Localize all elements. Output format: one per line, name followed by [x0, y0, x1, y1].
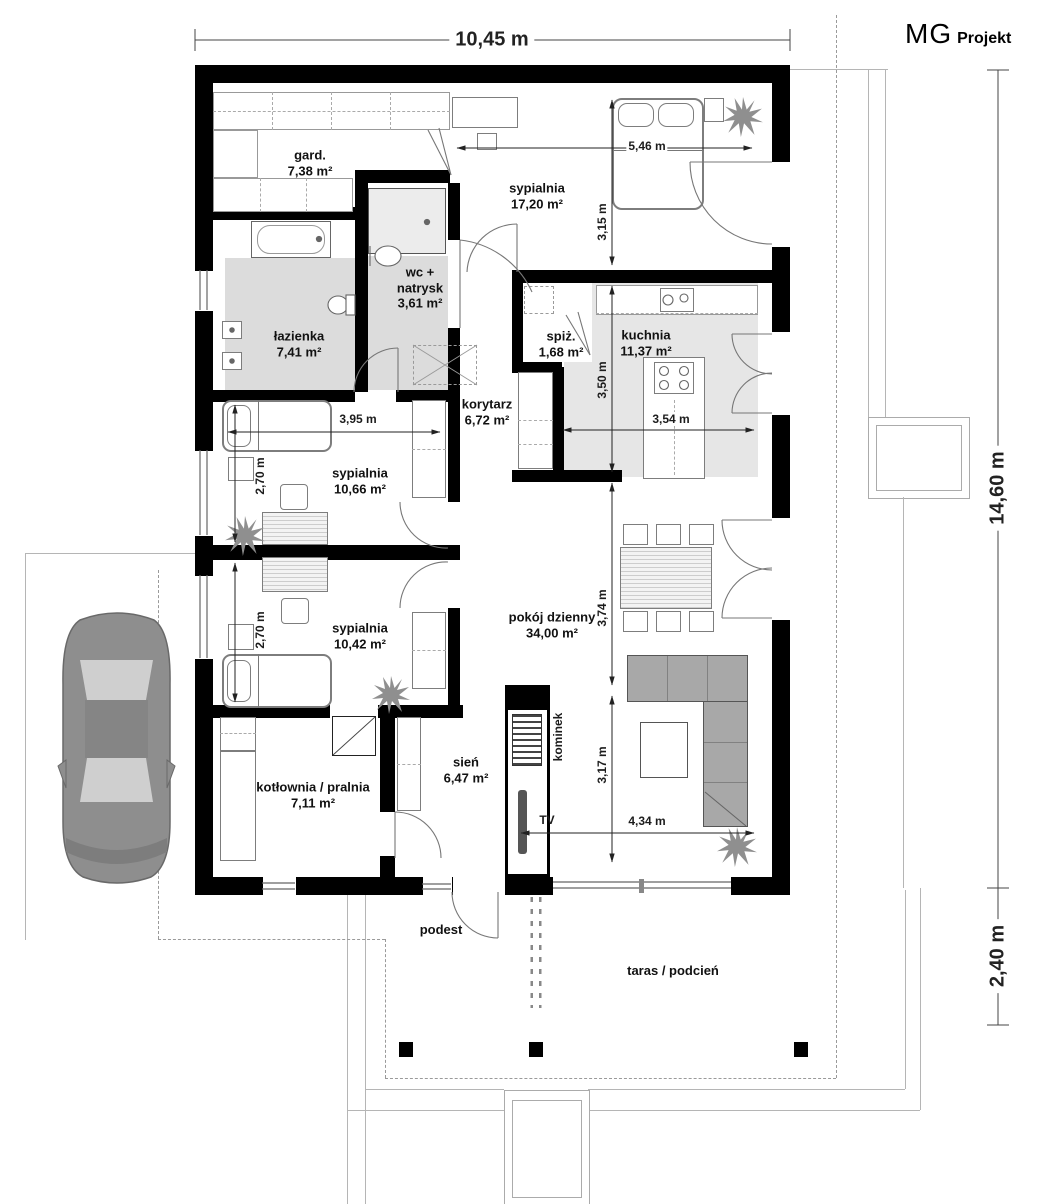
sofa-seam [704, 782, 747, 783]
room-name: kuchnia [620, 327, 671, 343]
bathtub-inner [257, 225, 325, 254]
terrace-dashed [385, 939, 386, 1078]
window [195, 270, 213, 312]
room-area: 10,66 m² [332, 481, 388, 497]
shower [368, 188, 446, 254]
wall-right [772, 247, 790, 332]
room-label-sien: sień 6,47 m² [444, 754, 489, 785]
roof-outline-dashed [836, 15, 837, 1078]
cooktop [654, 362, 694, 394]
kitchen-sink [660, 288, 694, 312]
entry-step-inner [512, 1100, 582, 1198]
sofa-seam [667, 656, 668, 701]
room-area: 3,61 m² [397, 296, 443, 312]
desk-chair [281, 598, 309, 624]
glazed-wall [553, 877, 639, 895]
dim-label: 5,46 m [626, 139, 667, 153]
wall-right [772, 415, 790, 518]
room-area: 7,11 m² [256, 795, 369, 811]
dim-label: 2,70 m [253, 455, 267, 496]
desk [262, 512, 328, 545]
driveway-dashed [158, 570, 159, 939]
dining-chair [656, 524, 681, 545]
taras-label: taras / podcień [627, 963, 719, 979]
brand-mg: MG [905, 18, 952, 50]
fireplace-label: kominek [551, 711, 565, 764]
podest-label: podest [420, 922, 463, 938]
wall-interior [448, 608, 460, 707]
room-name: sypialnia [332, 465, 388, 481]
wardrobe-divider [412, 650, 446, 651]
cabinet-divider [518, 420, 553, 421]
terrace-edge [347, 1110, 504, 1111]
terrace-post [399, 1042, 413, 1057]
dining-chair [689, 611, 714, 632]
terrace-edge [588, 1089, 905, 1090]
dim-label: 2,70 m [253, 609, 267, 650]
room-area: 7,41 m² [274, 344, 325, 360]
window [195, 575, 213, 660]
tv-unit [518, 790, 527, 854]
wardrobe [452, 97, 518, 128]
wall-interior [512, 270, 772, 283]
wall-interior [512, 470, 622, 482]
dining-chair [689, 524, 714, 545]
room-area: 6,47 m² [444, 770, 489, 786]
coffee-table [640, 722, 688, 778]
site-line [905, 890, 906, 1089]
room-name: natrysk [397, 280, 443, 296]
site-line [885, 70, 886, 417]
cabinet-divider [220, 733, 256, 734]
terrace-dashed [158, 939, 385, 940]
room-name: kotłownia / pralnia [256, 779, 369, 795]
room-label-spiz: spiż. 1,68 m² [539, 328, 584, 359]
terrace-post [794, 1042, 808, 1057]
dim-label: 3,50 m [595, 359, 609, 400]
dining-chair [656, 611, 681, 632]
room-area: 6,72 m² [462, 412, 513, 428]
wardrobe-divider [213, 111, 450, 112]
room-area: 17,20 m² [509, 196, 565, 212]
sofa [703, 701, 748, 827]
wardrobe-divider [306, 178, 307, 212]
site-line [790, 69, 888, 70]
wall-right [772, 620, 790, 895]
room-label-wc: wc + natrysk 3,61 m² [397, 265, 443, 312]
wardrobe [213, 130, 258, 178]
room-label-gard: gard. 7,38 m² [288, 147, 333, 178]
wall-right [772, 65, 790, 162]
blanket-line [258, 654, 259, 708]
cabinet-divider [397, 764, 421, 765]
room-label-sypialnia2: sypialnia 10,66 m² [332, 465, 388, 496]
room-name: sień [444, 754, 489, 770]
nightstand [704, 98, 724, 122]
window [195, 450, 213, 537]
wall-interior [380, 718, 395, 812]
cabinet-divider [518, 444, 553, 445]
room-name: spiż. [539, 328, 584, 344]
site-line [920, 888, 921, 1110]
wall-bottom [195, 877, 262, 895]
terrace-depth-label: 2,40 m [987, 919, 1010, 993]
room-name: wc + [397, 265, 443, 281]
dining-chair [623, 524, 648, 545]
dim-label: 3,95 m [337, 412, 378, 426]
window [262, 877, 297, 895]
pillow [618, 103, 654, 127]
wall-top [195, 65, 790, 83]
wall-interior [448, 402, 460, 502]
room-area: 11,37 m² [620, 343, 671, 359]
walkway-edge [347, 895, 348, 1204]
dim-label: 3,54 m [650, 412, 691, 426]
pillow [227, 405, 251, 447]
floor-plan: MG Projekt 10,45 m 14,60 m 2,40 m gard. … [0, 0, 1050, 1204]
terrace-post [529, 1042, 543, 1057]
site-line [903, 497, 904, 888]
utility-cabinet [220, 751, 256, 861]
wall-interior [380, 856, 395, 877]
walkway-edge [365, 895, 366, 1204]
nightstand [228, 624, 254, 650]
dim-label: 4,34 m [626, 814, 667, 828]
washbasin [222, 321, 242, 339]
room-label-kuchnia: kuchnia 11,37 m² [620, 327, 671, 358]
wall-interior [512, 283, 523, 373]
tv-label: TV [537, 813, 556, 827]
wall-interior [355, 170, 368, 392]
room-name: sypialnia [332, 620, 388, 636]
room-area: 34,00 m² [509, 625, 596, 641]
wall-left [195, 65, 213, 270]
dining-table [620, 547, 712, 609]
room-label-pokoj: pokój dzienny 34,00 m² [509, 609, 596, 640]
fireplace-wall-cap [505, 685, 550, 707]
pantry-shelf [524, 286, 554, 314]
dim-label: 3,17 m [595, 744, 609, 785]
fireplace-insert [512, 714, 542, 766]
dresser [477, 133, 497, 150]
desk [262, 557, 328, 592]
terrace-dashed [385, 1078, 836, 1079]
room-area: 7,38 m² [288, 163, 333, 179]
attic-hatch [413, 345, 477, 385]
desk-chair [280, 484, 308, 510]
wardrobe-divider [412, 449, 446, 450]
sofa-seam [704, 742, 747, 743]
site-line [868, 70, 869, 417]
room-name: łazienka [274, 328, 325, 344]
dim-label: 3,15 m [595, 201, 609, 242]
wall-left [195, 658, 213, 895]
glazed-wall [644, 877, 731, 895]
room-label-sypialnia1: sypialnia 17,20 m² [509, 180, 565, 211]
site-box-inner [876, 425, 962, 491]
sofa [627, 655, 748, 702]
window-sidelight [422, 877, 453, 895]
driveway-edge [25, 553, 26, 940]
room-label-sypialnia3: sypialnia 10,42 m² [332, 620, 388, 651]
pillow [227, 660, 251, 702]
dining-chair [623, 611, 648, 632]
wardrobe [213, 178, 353, 212]
room-label-lazienka: łazienka 7,41 m² [274, 328, 325, 359]
driveway-edge [25, 553, 197, 554]
sofa-seam [707, 656, 708, 701]
wall-bottom [295, 877, 422, 895]
overall-height-label: 14,60 m [987, 445, 1010, 530]
overall-width-label: 10,45 m [449, 29, 534, 52]
wall-left [195, 535, 213, 575]
room-name: pokój dzienny [509, 609, 596, 625]
brand-projekt: Projekt [957, 30, 1011, 48]
glazing-mullion [639, 879, 644, 893]
room-name: gard. [288, 147, 333, 163]
wall-bottom [505, 877, 553, 895]
blanket-line [258, 400, 259, 452]
wall-interior [355, 170, 450, 183]
wall-interior [553, 367, 564, 470]
wall-interior [213, 545, 460, 560]
wall-bottom [731, 877, 790, 895]
terrace-edge [588, 1110, 920, 1111]
counter-dashed-edge [596, 313, 758, 314]
room-area: 10,42 m² [332, 636, 388, 652]
dim-label: 3,74 m [595, 587, 609, 628]
wall-interior [448, 183, 460, 240]
brand-logo: MG Projekt [905, 18, 1035, 50]
wardrobe-divider [260, 178, 261, 212]
utility-cabinet [220, 717, 256, 751]
room-name: sypialnia [509, 180, 565, 196]
terrace-edge [365, 1089, 504, 1090]
pillow [658, 103, 694, 127]
wall-left [195, 310, 213, 450]
room-name: korytarz [462, 396, 513, 412]
room-label-kotlownia: kotłownia / pralnia 7,11 m² [256, 779, 369, 810]
water-heater [332, 716, 376, 756]
room-label-korytarz: korytarz 6,72 m² [462, 396, 513, 427]
nightstand [228, 457, 254, 481]
room-area: 1,68 m² [539, 344, 584, 360]
washbasin [222, 352, 242, 370]
bathroom-floor [225, 258, 355, 390]
